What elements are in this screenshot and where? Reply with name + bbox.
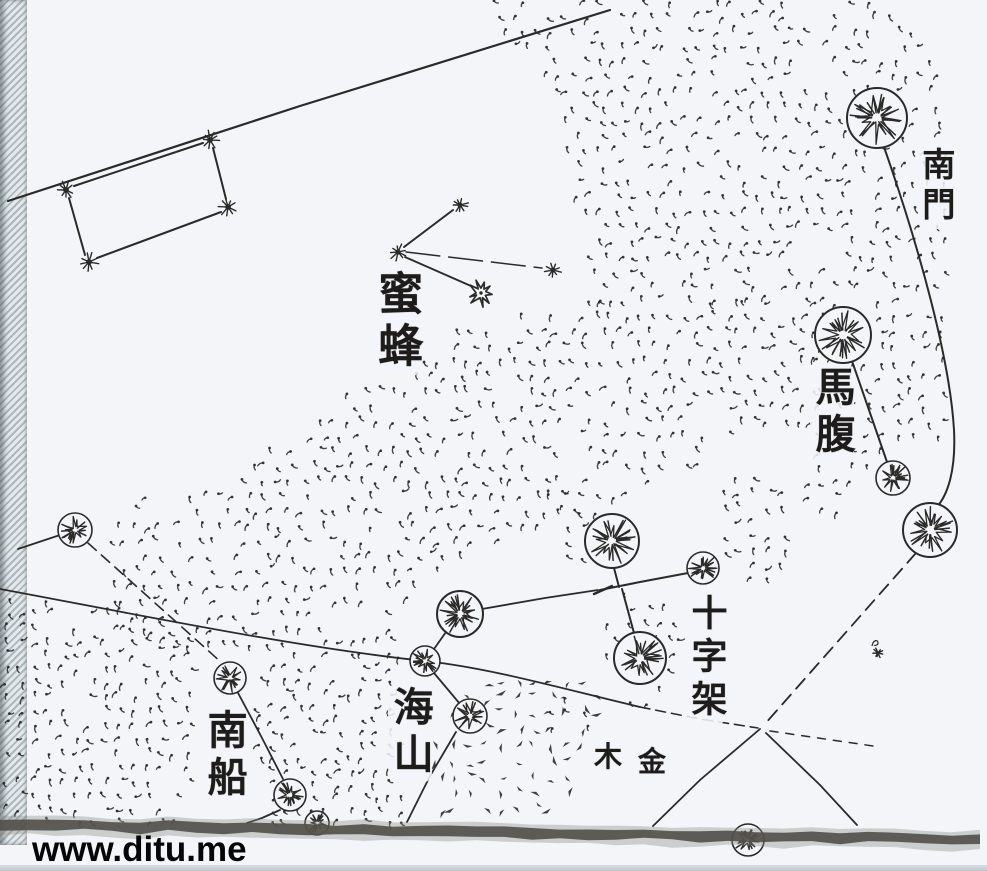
circled-star (453, 699, 487, 733)
circled-star (687, 552, 719, 584)
line-quad-top (74, 143, 203, 186)
small-star (873, 648, 883, 657)
line-quad-right (213, 148, 226, 199)
line-quad-left (69, 198, 85, 255)
constellation-label-mafu: 馬腹 (810, 364, 854, 462)
constellation-label-haishan: 海山 (388, 684, 432, 782)
circled-star (410, 646, 440, 676)
circled-star (815, 307, 871, 363)
planet-label-mu: 木 (592, 741, 624, 772)
constellation-label-shizijia: 十字架 (686, 592, 725, 725)
line-haishan-b (434, 673, 460, 704)
line-cross-left-arm (653, 729, 760, 826)
circled-star (585, 514, 639, 568)
line-k-west (18, 535, 60, 549)
circled-star (437, 591, 483, 637)
circled-star (274, 779, 306, 811)
line-haishan-a (434, 632, 446, 649)
stars (58, 88, 958, 856)
small-star (453, 199, 468, 212)
antique-star-map: 南門 蜜蜂 馬腹 十字架 海山 南船 木 金 www.ditu.me (0, 0, 987, 871)
line-cross-right-arm (766, 733, 857, 825)
circled-star (214, 662, 246, 694)
line-crux-west (482, 590, 598, 609)
line-crux-top (614, 568, 619, 587)
constellation-label-mifeng: 蜜蜂 (372, 268, 421, 376)
line-crux-south (622, 589, 634, 633)
circled-star (847, 88, 907, 148)
constellation-label-nanchuan: 南船 (202, 707, 246, 805)
line-k-l-dash (88, 543, 222, 663)
small-star (218, 198, 236, 215)
circled-star (58, 513, 92, 547)
line-crux-east (600, 573, 688, 590)
circled-star (903, 503, 957, 557)
line-mafu-link (852, 361, 887, 462)
small-star (545, 263, 562, 277)
small-star (81, 253, 99, 272)
line-ecliptic-dash (764, 553, 916, 725)
planet-label-jin: 金 (636, 746, 668, 777)
line-bee-a (404, 210, 453, 247)
line-boundary-nw (8, 10, 610, 201)
circled-star (876, 461, 910, 495)
line-cross-dashes-right (770, 731, 880, 747)
circled-star (614, 632, 666, 684)
watermark-text: www.ditu.me (32, 830, 247, 870)
line-equator (0, 589, 640, 707)
line-quad-bottom (97, 212, 221, 258)
constellation-label-nanmen: 南門 (918, 145, 954, 229)
